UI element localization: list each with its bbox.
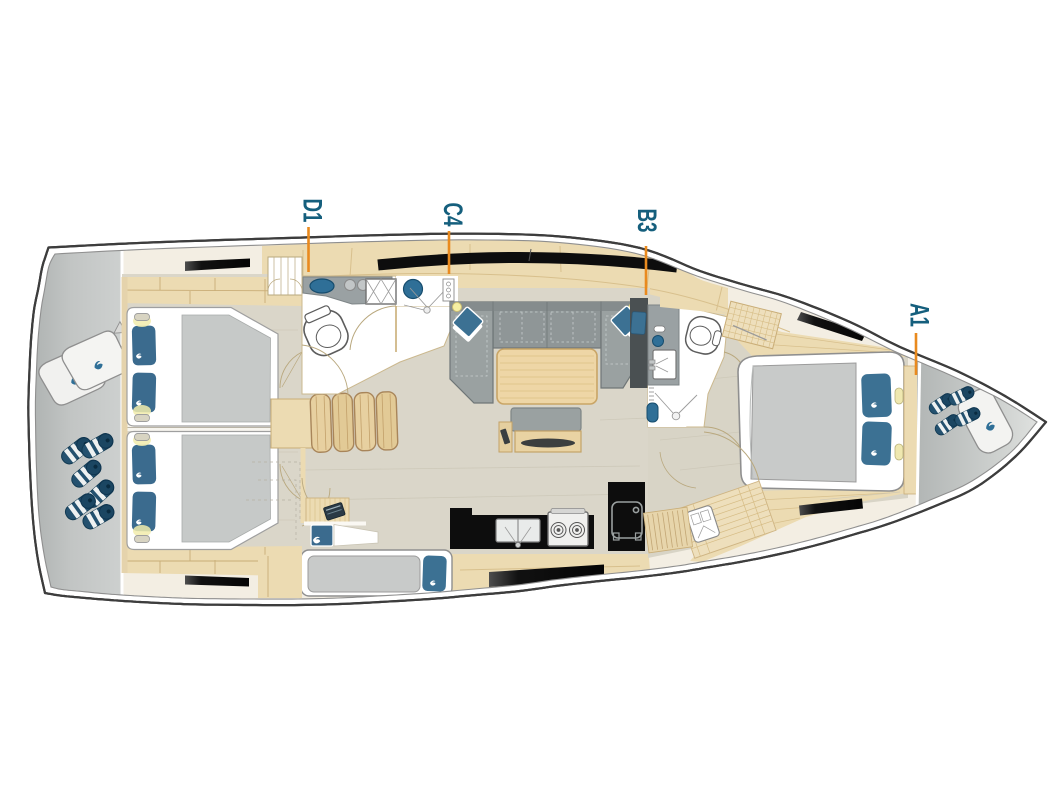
svg-text:D1: D1 xyxy=(298,199,328,223)
svg-text:C4: C4 xyxy=(438,203,468,227)
svg-text:A1: A1 xyxy=(905,303,935,327)
svg-text:B3: B3 xyxy=(632,209,662,233)
